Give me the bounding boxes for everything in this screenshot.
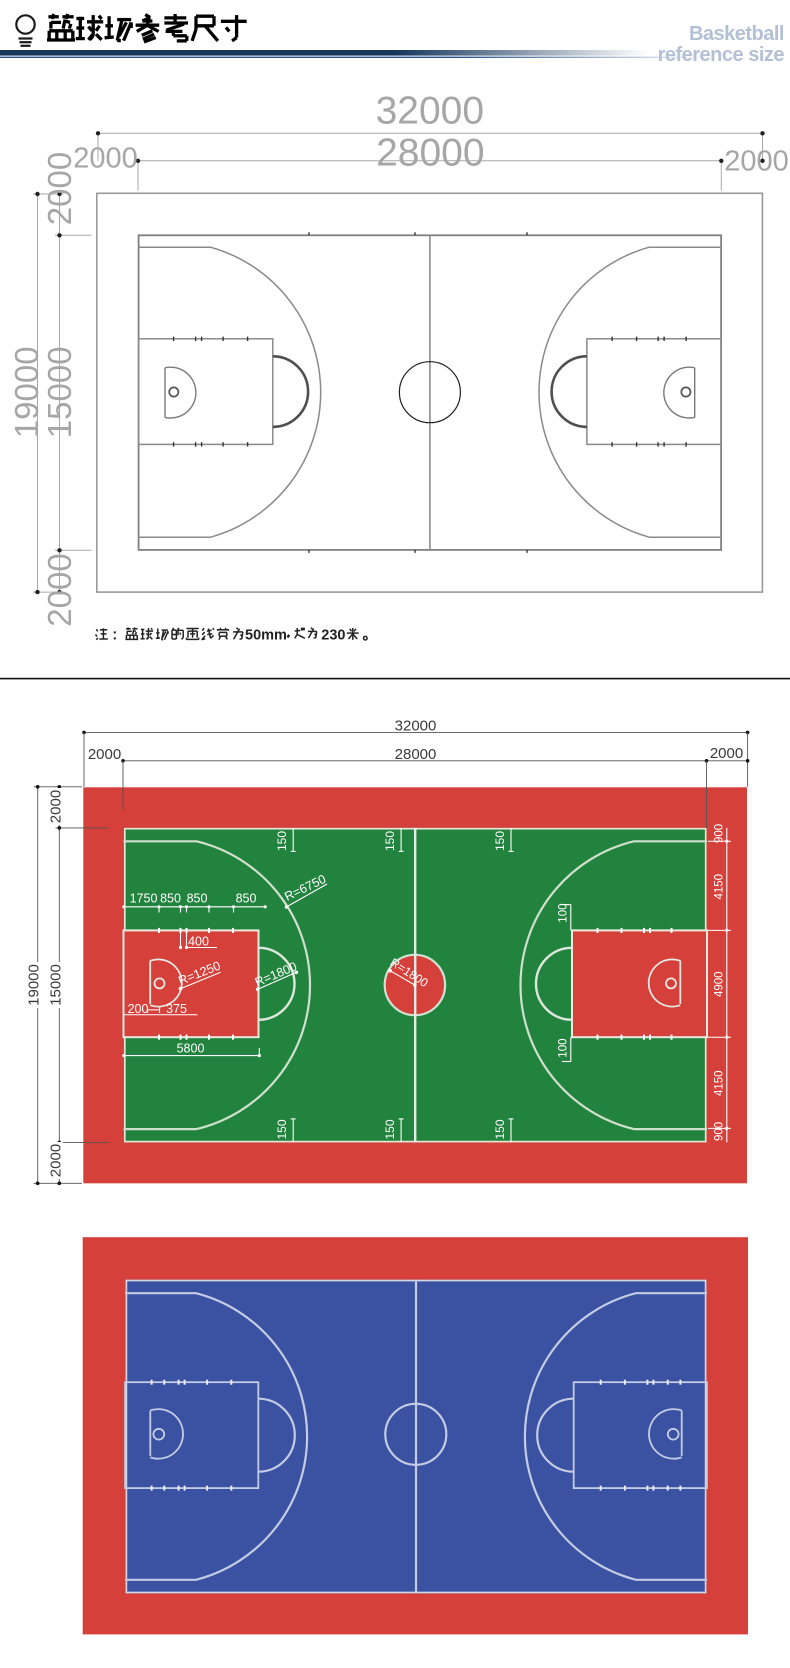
svg-text:100: 100 <box>558 904 570 923</box>
svg-text:15000: 15000 <box>48 964 65 1006</box>
svg-text:50mm: 50mm <box>245 628 287 644</box>
svg-text:150: 150 <box>493 831 507 851</box>
svg-text:4900: 4900 <box>714 971 726 997</box>
svg-text:4150: 4150 <box>714 874 726 900</box>
svg-text:2000: 2000 <box>73 143 138 175</box>
svg-text:2000: 2000 <box>724 146 789 178</box>
svg-text:200: 200 <box>128 1002 149 1016</box>
svg-text:375: 375 <box>166 1002 187 1016</box>
svg-text:5800: 5800 <box>177 1042 205 1056</box>
svg-text:32000: 32000 <box>395 717 437 734</box>
svg-text:850: 850 <box>236 892 257 906</box>
svg-text:2000: 2000 <box>710 745 743 762</box>
svg-text:850: 850 <box>160 892 181 906</box>
svg-text:Basketball: Basketball <box>689 23 784 45</box>
svg-text:850: 850 <box>187 892 208 906</box>
svg-text:2000: 2000 <box>41 152 78 225</box>
svg-text:900: 900 <box>714 1122 726 1141</box>
svg-text:900: 900 <box>714 824 726 843</box>
svg-text:2000: 2000 <box>48 1144 65 1177</box>
svg-text:100: 100 <box>558 1039 570 1058</box>
svg-text:2000: 2000 <box>48 790 65 823</box>
svg-text:230: 230 <box>321 628 345 644</box>
svg-text:28000: 28000 <box>395 746 437 763</box>
svg-text:reference size: reference size <box>658 44 785 66</box>
svg-text:150: 150 <box>493 1119 507 1139</box>
svg-text:32000: 32000 <box>376 90 484 133</box>
svg-text:150: 150 <box>275 831 289 851</box>
svg-text:15000: 15000 <box>41 346 78 438</box>
svg-text:2000: 2000 <box>41 553 78 626</box>
svg-text:4150: 4150 <box>714 1070 726 1096</box>
svg-text:150: 150 <box>383 1119 397 1139</box>
svg-text:1750: 1750 <box>130 892 158 906</box>
svg-text:28000: 28000 <box>376 132 484 175</box>
svg-text:19000: 19000 <box>8 346 45 438</box>
svg-text:400: 400 <box>188 935 209 949</box>
svg-text:150: 150 <box>383 831 397 851</box>
svg-text:2000: 2000 <box>88 746 121 763</box>
svg-text:19000: 19000 <box>26 964 43 1006</box>
svg-text:150: 150 <box>275 1119 289 1139</box>
